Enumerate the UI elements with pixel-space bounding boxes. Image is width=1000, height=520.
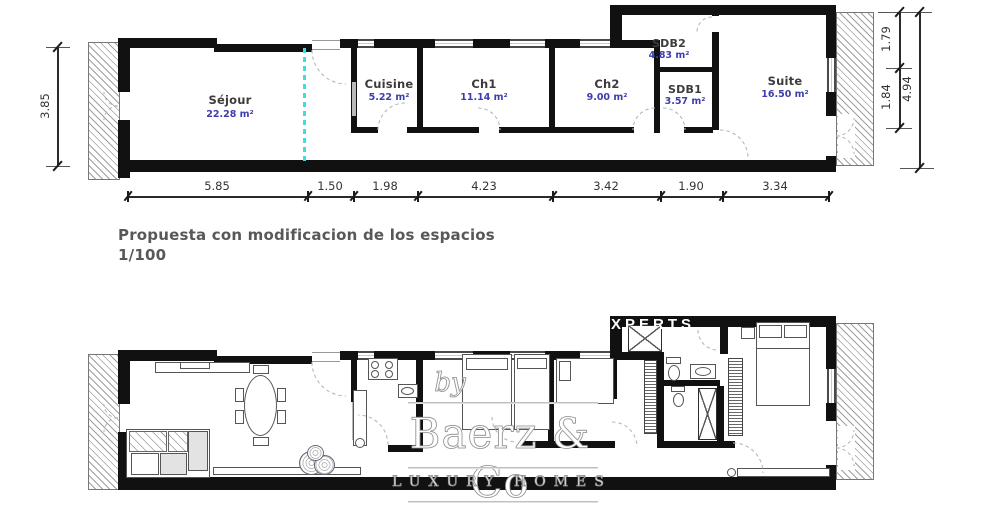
watermark-brand: Baerz & Co [385,409,615,507]
door-arc [312,362,346,396]
door-arc [836,430,854,448]
door-arc [663,108,685,130]
watermark-rule [408,402,598,404]
watermark-tagline: LUXURY HOMES [392,474,612,490]
door-arc [478,108,500,130]
watermark-rule [408,501,598,503]
door-arc [720,130,748,158]
room-area-suite: 16.50 m² [730,89,840,100]
room-area-sdb1: 3.57 m² [630,96,740,107]
room-area-ch1: 11.14 m² [429,92,539,103]
door-arc [698,330,716,350]
door-arc [733,443,763,473]
door-arc [104,418,118,432]
room-area-sdb2: 4.83 m² [614,50,724,61]
room-label-cuisine: Cuisine [334,77,444,91]
door-arc [104,92,118,106]
door-arc [836,136,854,154]
floorplan-document: Séjour 22.28 m² Cuisine 5.22 m² Ch1 11.1… [0,0,1000,520]
door-arc [378,103,405,130]
room-label-sejour: Séjour [175,93,285,107]
door-arc [358,415,388,445]
room-area-sejour: 22.28 m² [175,109,285,120]
room-label-ch1: Ch1 [429,77,539,91]
door-arc [633,108,655,130]
door-arc [836,118,854,136]
watermark-experts: XPERTS [611,316,695,333]
door-arc [104,404,118,418]
room-label-suite: Suite [730,74,840,88]
room-label-sdb1: SDB1 [630,83,740,96]
door-arc [612,422,637,447]
watermark-rule [408,467,598,469]
door-arc [104,106,118,120]
watermark-by: by [420,368,480,398]
room-area-cuisine: 5.22 m² [334,92,444,103]
door-arc [697,17,712,32]
door-arc [836,448,854,466]
room-label-sdb2: SDB2 [614,37,724,50]
